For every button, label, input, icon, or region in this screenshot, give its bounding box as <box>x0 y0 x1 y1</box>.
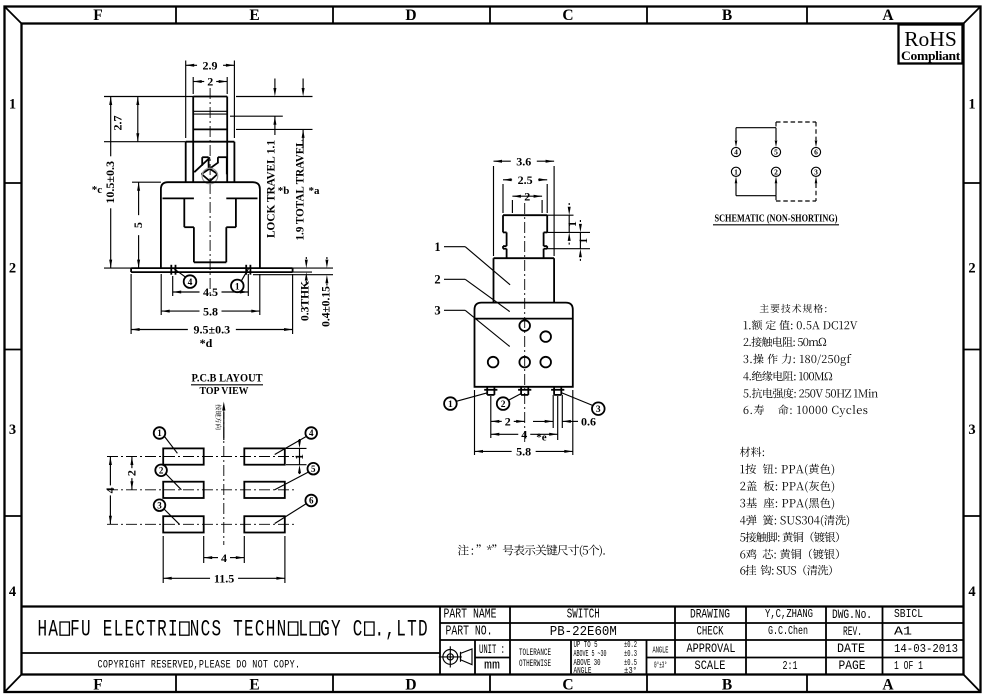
svg-text:SCALE: SCALE <box>695 658 726 673</box>
svg-text:A: A <box>882 7 894 24</box>
svg-text:1: 1 <box>434 240 440 254</box>
svg-text:B: B <box>722 676 732 693</box>
svg-text:3: 3 <box>157 500 162 510</box>
svg-text:DRAWING: DRAWING <box>690 607 730 622</box>
svg-text:COPYRIGHT RESERVED,PLEASE DO N: COPYRIGHT RESERVED,PLEASE DO NOT COPY. <box>98 658 301 670</box>
svg-text:4.5: 4.5 <box>203 285 218 299</box>
svg-text:HA FU ELECTRI NCS TECHN L GY C: HA FU ELECTRI NCS TECHN L GY C .,LTD <box>38 616 429 643</box>
svg-text:3.6: 3.6 <box>516 154 531 168</box>
svg-text:2: 2 <box>774 167 778 176</box>
svg-text:B: B <box>722 7 732 24</box>
svg-text:A1: A1 <box>894 624 912 638</box>
svg-text:1.9 TOTAL TRAVEL: 1.9 TOTAL TRAVEL <box>294 139 306 240</box>
svg-text:RoHS: RoHS <box>904 27 957 51</box>
svg-text:TOLERANCE: TOLERANCE <box>519 648 551 659</box>
svg-text:TOP VIEW: TOP VIEW <box>200 385 249 397</box>
svg-text:6: 6 <box>814 148 818 157</box>
svg-text:*e: *e <box>536 432 547 444</box>
svg-text:Compliant: Compliant <box>901 49 961 63</box>
svg-text:3: 3 <box>434 304 440 318</box>
svg-text:2: 2 <box>968 260 975 276</box>
svg-text:2:1: 2:1 <box>783 659 798 673</box>
svg-text:1: 1 <box>578 238 590 244</box>
svg-text:C: C <box>562 676 573 693</box>
svg-text:1: 1 <box>294 454 306 460</box>
svg-text:0.6: 0.6 <box>581 415 596 429</box>
svg-text:UNIT :: UNIT : <box>479 642 505 657</box>
svg-text:mm: mm <box>484 658 500 673</box>
svg-text:CHECK: CHECK <box>697 624 724 639</box>
svg-text:4: 4 <box>188 278 193 288</box>
svg-text:2: 2 <box>501 400 506 410</box>
svg-text:OTHERWISE: OTHERWISE <box>519 659 551 670</box>
svg-text:LOCK TRAVEL 1.1: LOCK TRAVEL 1.1 <box>266 140 278 238</box>
svg-text:DWG.No.: DWG.No. <box>832 608 872 622</box>
svg-text:D: D <box>405 676 416 693</box>
svg-text:G.C.Chen: G.C.Chen <box>768 625 808 638</box>
svg-text:2.5: 2.5 <box>518 173 533 187</box>
svg-text:1: 1 <box>567 221 579 227</box>
svg-text:4: 4 <box>968 584 975 600</box>
svg-text:2: 2 <box>159 466 164 476</box>
svg-text:2: 2 <box>505 415 511 429</box>
svg-text:3: 3 <box>596 405 601 415</box>
svg-text:2: 2 <box>524 189 530 203</box>
svg-text:SBICL: SBICL <box>894 607 923 621</box>
svg-text:PB-22E60M: PB-22E60M <box>550 625 617 640</box>
svg-text:0°±3°: 0°±3° <box>654 660 667 670</box>
svg-text:0.3THK: 0.3THK <box>300 281 312 321</box>
svg-text:5: 5 <box>131 222 145 228</box>
svg-text:1: 1 <box>448 400 453 410</box>
svg-text:10.5±0.3: 10.5±0.3 <box>103 161 117 204</box>
svg-text:5: 5 <box>311 464 316 474</box>
svg-text:2: 2 <box>207 75 213 89</box>
svg-text:P.C.B LAYOUT: P.C.B LAYOUT <box>192 373 263 385</box>
svg-text:F: F <box>93 676 102 693</box>
svg-text:4: 4 <box>103 487 117 493</box>
svg-text:PAGE: PAGE <box>839 659 866 673</box>
svg-text:PART NAME: PART NAME <box>444 608 497 623</box>
svg-text:C: C <box>562 7 573 24</box>
svg-text:2: 2 <box>124 470 138 476</box>
svg-text:ANGLE: ANGLE <box>653 644 669 655</box>
svg-text:SWITCH: SWITCH <box>567 608 600 623</box>
svg-text:2: 2 <box>434 273 440 287</box>
svg-text:REV.: REV. <box>843 625 862 639</box>
svg-text:APPROVAL: APPROVAL <box>687 641 736 656</box>
svg-text:0.4±0.15: 0.4±0.15 <box>320 286 332 327</box>
svg-text:ANGLE: ANGLE <box>574 666 592 676</box>
svg-text:Y,C,ZHANG: Y,C,ZHANG <box>765 608 813 621</box>
svg-text:1: 1 <box>734 167 738 176</box>
svg-text:2.9: 2.9 <box>203 59 218 73</box>
svg-text:4: 4 <box>309 428 314 438</box>
svg-text:6: 6 <box>309 496 314 506</box>
svg-text:4: 4 <box>221 551 227 565</box>
svg-text:E: E <box>249 7 259 24</box>
svg-text:1: 1 <box>9 96 16 112</box>
svg-text:*d: *d <box>200 336 213 350</box>
svg-text:*a: *a <box>309 185 321 197</box>
svg-text:E: E <box>249 676 259 693</box>
svg-text:14-03-2013: 14-03-2013 <box>894 642 958 656</box>
svg-text:±3°: ±3° <box>624 666 637 676</box>
svg-text:A: A <box>882 676 894 693</box>
svg-text:SCHEMATIC (NON-SHORTING): SCHEMATIC (NON-SHORTING) <box>715 213 838 225</box>
svg-text:DATE: DATE <box>837 642 865 656</box>
svg-text:5.8: 5.8 <box>516 445 531 459</box>
svg-text:*c: *c <box>92 184 103 196</box>
svg-text:PART NO.: PART NO. <box>446 625 493 640</box>
svg-text:4: 4 <box>734 148 738 157</box>
svg-text:1: 1 <box>968 96 975 112</box>
svg-text:3: 3 <box>968 422 975 438</box>
svg-text:1: 1 <box>157 428 162 438</box>
svg-text:4: 4 <box>521 428 527 442</box>
svg-text:*b: *b <box>278 185 290 197</box>
svg-text:5: 5 <box>774 148 778 157</box>
svg-text:F: F <box>93 7 102 24</box>
svg-text:9.5±0.3: 9.5±0.3 <box>194 323 231 337</box>
svg-text:D: D <box>405 7 416 24</box>
svg-text:2.7: 2.7 <box>110 115 124 130</box>
svg-text:1: 1 <box>235 282 240 292</box>
svg-text:3: 3 <box>814 167 818 176</box>
svg-text:2: 2 <box>9 260 16 276</box>
svg-text:1 OF 1: 1 OF 1 <box>894 659 923 673</box>
svg-text:3: 3 <box>9 422 16 438</box>
svg-text:5.8: 5.8 <box>203 304 218 318</box>
svg-text:11.5: 11.5 <box>214 572 234 586</box>
svg-text:4: 4 <box>9 584 16 600</box>
